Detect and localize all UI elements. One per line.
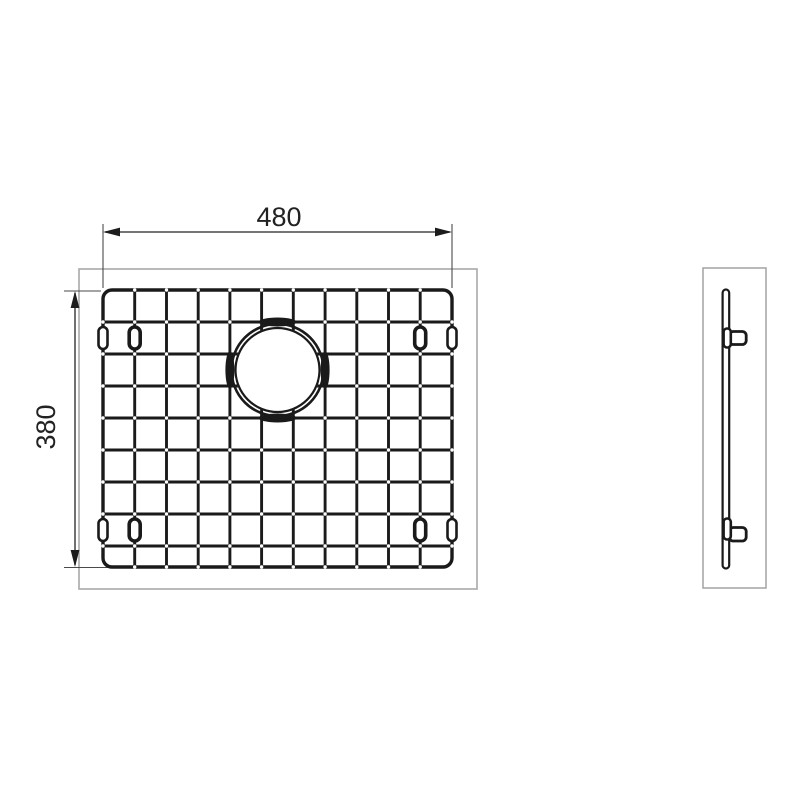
wire-crossing-dot (387, 320, 390, 323)
grid-foot (415, 519, 426, 541)
rim-clip (448, 327, 457, 349)
rim-clip (99, 519, 108, 541)
wire-crossing-dot (419, 544, 422, 547)
wire-crossing-dot (197, 320, 200, 323)
wire-crossing-dot (419, 480, 422, 483)
wire-crossing-dot (355, 480, 358, 483)
wire-crossing-dot (292, 512, 295, 515)
width-arrow-right-icon (435, 228, 452, 237)
rim-clip (99, 327, 108, 349)
wire-crossing-dot (260, 288, 263, 291)
wire-crossing-dot (101, 352, 104, 355)
wire-crossing-dot (419, 416, 422, 419)
wire-crossing-dot (292, 565, 295, 568)
wire-crossing-dot (355, 320, 358, 323)
wire-crossing-dot (387, 544, 390, 547)
wire-crossing-dot (228, 416, 231, 419)
wire-crossing-dot (450, 512, 453, 515)
wire-crossing-dot (260, 448, 263, 451)
wire-crossing-dot (165, 512, 168, 515)
wire-crossing-dot (387, 288, 390, 291)
width-dimension: 480 (103, 202, 452, 288)
wire-crossing-dot (355, 512, 358, 515)
wire-crossing-dot (323, 565, 326, 568)
wire-crossing-dot (387, 565, 390, 568)
wire-crossing-dot (101, 448, 104, 451)
wire-crossing-dot (292, 448, 295, 451)
wire-crossing-dot (387, 352, 390, 355)
wire-crossing-dot (228, 512, 231, 515)
height-dimension-label: 380 (31, 404, 61, 449)
wire-crossing-dot (387, 384, 390, 387)
wire-crossing-dot (197, 448, 200, 451)
wire-crossing-dot (323, 480, 326, 483)
wire-crossing-dot (387, 512, 390, 515)
wire-crossing-dot (165, 480, 168, 483)
wire-crossing-dot (419, 288, 422, 291)
wire-crossing-dot (133, 448, 136, 451)
wire-crossing-dot (101, 512, 104, 515)
wire-crossing-dot (419, 352, 422, 355)
wire-crossing-dot (165, 416, 168, 419)
wire-crossing-dot (355, 352, 358, 355)
grid-foot (129, 519, 140, 541)
wire-crossing-dot (197, 512, 200, 515)
wire-crossing-dot (133, 565, 136, 568)
wire-crossing-dot (419, 565, 422, 568)
wire-crossing-dot (197, 384, 200, 387)
wire-crossing-dot (101, 384, 104, 387)
wire-crossing-dot (323, 288, 326, 291)
wire-crossing-dot (165, 544, 168, 547)
wire-crossing-dot (133, 416, 136, 419)
drawing-svg: 480 380 (0, 0, 800, 800)
wire-crossing-dot (133, 352, 136, 355)
wire-crossing-dot (165, 384, 168, 387)
wire-crossing-dot (101, 416, 104, 419)
wire-crossing-dot (450, 384, 453, 387)
wire-crossing-dot (165, 320, 168, 323)
wire-crossing-dot (133, 480, 136, 483)
wire-crossing-dot (387, 448, 390, 451)
wire-crossing-dot (323, 448, 326, 451)
wire-crossing-dot (450, 416, 453, 419)
wire-crossing-dot (133, 512, 136, 515)
wire-crossing-dot (165, 448, 168, 451)
wire-crossing-dot (197, 288, 200, 291)
wire-crossing-dot (133, 320, 136, 323)
wire-crossing-dot (133, 288, 136, 291)
grid-foot (129, 327, 140, 349)
width-arrow-left-icon (103, 228, 120, 237)
width-dimension-label: 480 (256, 202, 301, 232)
wire-crossing-dot (450, 320, 453, 323)
wire-crossing-dot (228, 448, 231, 451)
wire-crossing-dot (101, 320, 104, 323)
wire-crossing-dot (292, 544, 295, 547)
wire-crossing-dot (419, 448, 422, 451)
wire-crossing-dot (260, 544, 263, 547)
front-view-grid (99, 288, 457, 568)
wire-crossing-dot (260, 565, 263, 568)
wire-crossing-dot (228, 480, 231, 483)
wire-crossing-dot (228, 320, 231, 323)
wire-crossing-dot (197, 565, 200, 568)
wire-crossing-dot (133, 384, 136, 387)
grid-foot (415, 327, 426, 349)
wire-crossing-dot (419, 320, 422, 323)
wire-crossing-dot (450, 448, 453, 451)
wire-crossing-dot (450, 480, 453, 483)
wire-crossing-dot (197, 352, 200, 355)
wire-crossing-dot (165, 565, 168, 568)
wire-crossing-dot (355, 288, 358, 291)
wire-crossing-dot (260, 480, 263, 483)
wire-crossing-dot (260, 512, 263, 515)
wire-crossing-dot (165, 288, 168, 291)
wire-crossing-dot (228, 544, 231, 547)
wire-crossing-dot (355, 565, 358, 568)
technical-drawing-page: 480 380 (0, 0, 800, 800)
side-clip-foot (724, 329, 731, 348)
wire-crossing-dot (133, 544, 136, 547)
wire-crossing-dot (387, 480, 390, 483)
wire-crossing-dot (419, 384, 422, 387)
wire-crossing-dot (387, 416, 390, 419)
wire-crossing-dot (355, 448, 358, 451)
wire-crossing-dot (323, 544, 326, 547)
wire-crossing-dot (450, 544, 453, 547)
wire-crossing-dot (323, 320, 326, 323)
wire-crossing-dot (355, 544, 358, 547)
wire-crossing-dot (197, 416, 200, 419)
wire-crossing-dot (292, 288, 295, 291)
wire-crossing-dot (355, 416, 358, 419)
wire-crossing-dot (197, 544, 200, 547)
wire-crossing-dot (228, 288, 231, 291)
wire-crossing-dot (292, 480, 295, 483)
wire-crossing-dot (101, 544, 104, 547)
wire-crossing-dot (165, 352, 168, 355)
rim-clip (448, 519, 457, 541)
wire-crossing-dot (419, 512, 422, 515)
height-arrow-top-icon (71, 291, 80, 308)
wire-crossing-dot (355, 384, 358, 387)
height-arrow-bottom-icon (71, 550, 80, 567)
wire-crossing-dot (228, 565, 231, 568)
side-view-profile (723, 290, 747, 569)
wire-crossing-dot (323, 512, 326, 515)
wire-crossing-dot (323, 416, 326, 419)
side-clip-foot (724, 519, 731, 540)
wire-crossing-dot (450, 352, 453, 355)
wire-crossing-dot (197, 480, 200, 483)
wire-crossing-dot (101, 480, 104, 483)
